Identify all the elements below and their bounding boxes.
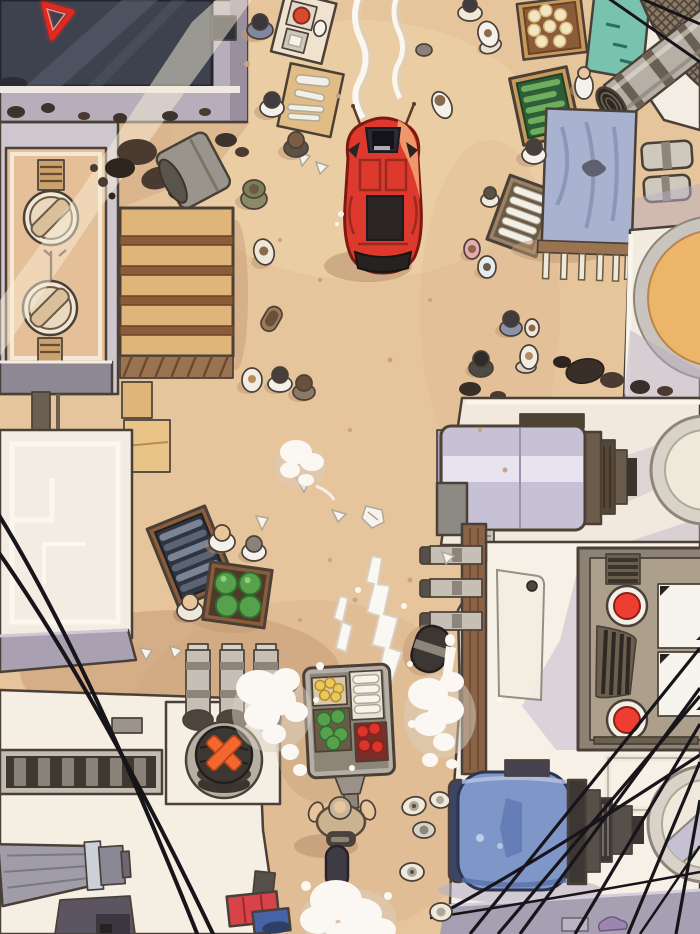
pedestrian bbox=[525, 319, 539, 337]
clear-flap bbox=[497, 570, 544, 700]
popcorn-crate bbox=[517, 0, 587, 60]
red-button-1 bbox=[607, 586, 647, 626]
illustration-panel bbox=[0, 0, 700, 934]
stall-table-2 bbox=[277, 63, 343, 137]
engine-cover bbox=[367, 196, 403, 240]
street-scene-canvas bbox=[0, 0, 700, 934]
roof-edge-band bbox=[0, 362, 112, 394]
vat-roof bbox=[624, 216, 700, 398]
